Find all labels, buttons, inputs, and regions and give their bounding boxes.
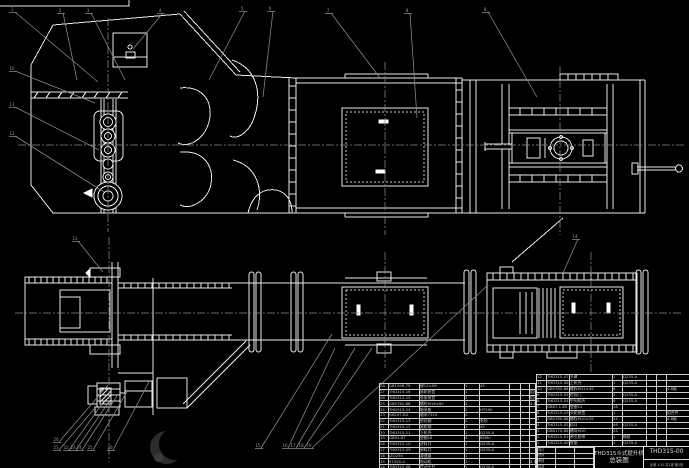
leader-line [563,239,578,273]
gearbox [88,386,97,404]
parts-table-left: 28GB1096-79键12×5614527THD315-16尾轮装置1组合件2… [379,383,536,468]
watermark-logo [148,429,186,466]
drawing-title-line2: 总装图 [609,457,629,464]
callout-number: 25 [87,446,92,450]
callout-number: 1 [11,8,14,12]
callout-number: 8 [406,9,409,13]
callout-number: 11 [9,103,14,107]
callout-number: 3 [87,9,90,13]
drive-bracket [125,381,152,407]
leader-line [488,12,537,97]
shaft [485,142,512,151]
leader-line [261,334,332,448]
middle-casing [296,74,462,217]
head-section [31,11,296,213]
callout-number: 21 [53,446,58,450]
callout-number: 13 [72,237,77,241]
callout-number: 10 [9,67,14,71]
cad-viewport: 1234567891011121314151617181920212223242… [0,0,689,468]
callout-number: 12 [9,132,14,136]
signature-grid: 设计校核审核批准 [537,447,594,468]
leader-line [133,13,163,49]
leader-line [410,13,417,118]
callout-number: 14 [572,235,577,239]
callout-number: 26 [107,446,112,450]
callout-number: 7 [327,9,330,13]
boot-plan [487,267,648,358]
callout-number: 9 [484,8,487,12]
callout-number: 5 [241,7,244,11]
callout-number: 24 [76,446,81,450]
callout-number: 20 [53,438,58,442]
leader-line [76,400,110,450]
table-row: 批准 [538,465,594,468]
title-block: 设计校核审核批准 THD315斗式提升机 总装图 THD315-00 比例 1:… [536,446,689,468]
callout-number: 19 [306,444,311,448]
callout-number: 17 [290,444,295,448]
leader-line [209,11,245,80]
callout-number: 15 [255,444,260,448]
scale-note: 比例 1:10 共1张 第1张 [644,460,689,468]
boot-section [462,74,683,213]
callout-number: 18 [298,444,303,448]
parts-table-right: 12THD315-07头罩1Q235-A11THD315-06上机壳1Q235-… [536,374,689,454]
leader-line [263,11,273,97]
callout-number: 4 [159,9,162,13]
callout-number: 16 [282,444,287,448]
callout-number: 6 [269,7,272,11]
head-plan [25,262,120,368]
casing-plan [118,270,476,354]
callout-number: 23 [70,446,75,450]
leader-line [78,241,103,272]
drawing-number: THD315-00 [644,447,689,460]
drawing-title: THD315斗式提升机 总装图 [594,447,644,468]
leader-line [296,348,355,448]
takeup-mechanism [512,133,605,163]
table-row: 14THD315-08传动平台1Q235-A [380,465,536,468]
boot-cover-plate [560,287,623,338]
frame-corner [0,0,129,6]
leader-line [15,136,104,192]
callout-number: 22 [63,446,68,450]
callout-number: 2 [59,9,62,13]
elevation-view [31,11,683,262]
leader-line [331,13,380,78]
